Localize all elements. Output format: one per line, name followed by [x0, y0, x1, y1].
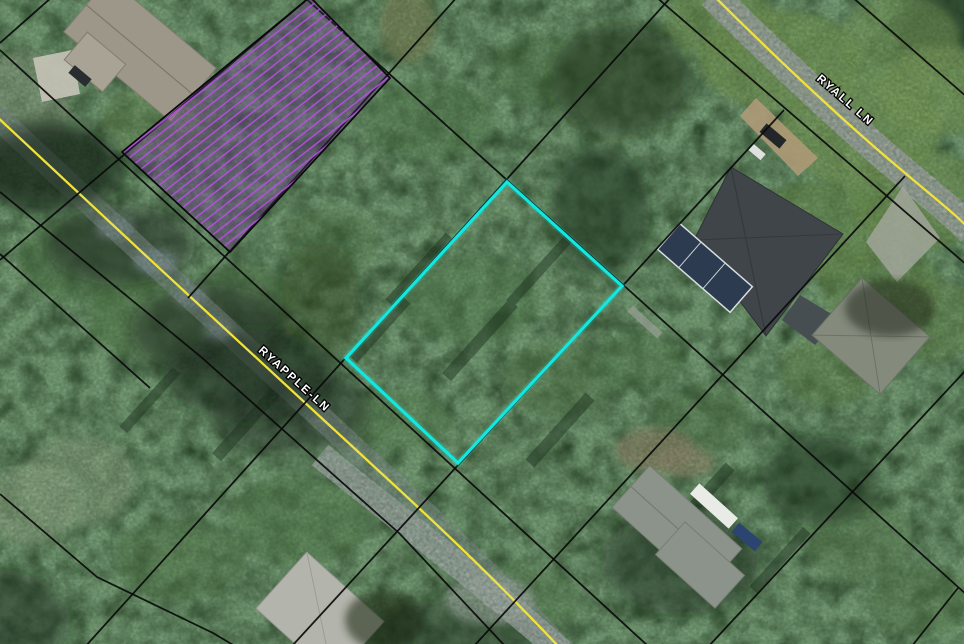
map-canvas[interactable]: RYALL LN RYAPPLE-LN — [0, 0, 964, 644]
aerial-map[interactable]: RYALL LN RYAPPLE-LN — [0, 0, 964, 644]
